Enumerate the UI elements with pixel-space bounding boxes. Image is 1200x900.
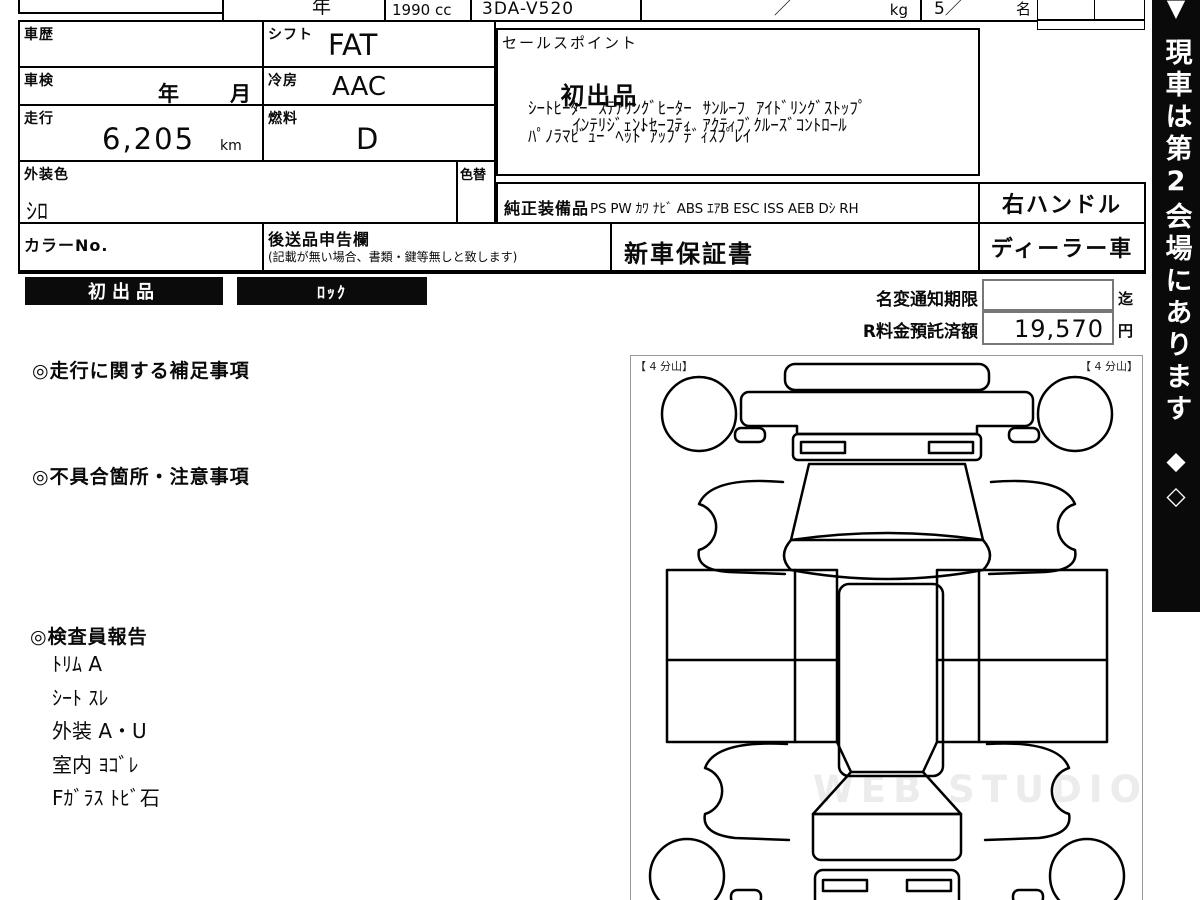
ac-label: 冷房 bbox=[268, 70, 298, 90]
front-grille-bar bbox=[741, 392, 1033, 434]
fender-front-left bbox=[699, 481, 785, 574]
lock-badge-label: ﾛｯｸ bbox=[317, 279, 347, 303]
dealer-value: ディーラー車 bbox=[991, 231, 1133, 263]
wheel-front-right bbox=[1038, 377, 1112, 451]
fender-front-right bbox=[989, 481, 1075, 574]
year-label: 年 bbox=[312, 0, 331, 19]
taillight-left bbox=[823, 880, 867, 891]
inspector-report-list: ﾄﾘﾑ A ｼｰﾄ ｽﾚ 外装 A・U 室内 ﾖｺﾞﾚ Fｶﾞﾗｽ ﾄﾋﾞ石 bbox=[52, 648, 160, 816]
top-cell-box-lower bbox=[1037, 20, 1145, 30]
top-cell-displacement: 1990 cc bbox=[384, 0, 472, 22]
table-bottom-rule bbox=[18, 270, 1146, 274]
wheel-rear-right bbox=[1050, 839, 1124, 900]
top-cell-empty bbox=[18, 0, 224, 14]
shift-cell: シフト FAT bbox=[262, 20, 496, 68]
mirror-left bbox=[735, 428, 765, 442]
venue-banner: ▼ 現車は第2会場にあります ◆◇ bbox=[1152, 0, 1200, 612]
lock-badge: ﾛｯｸ bbox=[237, 277, 427, 305]
doors-left bbox=[667, 570, 837, 742]
quarter-rear-left bbox=[705, 744, 789, 841]
car-diagram-panel: 【 4 分山】 【 4 分山】 WEB STUDIO PRO bbox=[630, 355, 1143, 900]
sales-point-line2: ｼｰﾄﾋｰﾀｰ ｽﾃｱﾘﾝｸﾞﾋｰﾀｰ ｻﾝﾙｰﾌ ｱｲﾄﾞﾘﾝｸﾞｽﾄｯﾌﾟ bbox=[528, 94, 866, 119]
venue-banner-text: 現車は第2会場にあります bbox=[1157, 38, 1196, 426]
car-top-view-diagram bbox=[631, 356, 1143, 900]
hood-front bbox=[793, 434, 981, 460]
model-code-value: 3DA-V520 bbox=[482, 0, 574, 19]
first-listing-badge-label: 初出品 bbox=[88, 278, 160, 304]
name-change-field bbox=[982, 279, 1114, 311]
deposit-label: R料金預託済額 bbox=[820, 317, 978, 342]
rear-tab-right bbox=[1013, 890, 1043, 900]
top-cell-year: 年 bbox=[222, 0, 386, 22]
section-inspector-report: ◎検査員報告 bbox=[30, 622, 148, 649]
mirror-right bbox=[1009, 428, 1039, 442]
report-item-exterior: 外装 A・U bbox=[52, 715, 160, 749]
fuel-value: D bbox=[356, 122, 378, 156]
top-cell-box-divider bbox=[1094, 0, 1095, 19]
mileage-label: 走行 bbox=[24, 108, 54, 128]
headlight-right bbox=[929, 442, 973, 453]
report-item-trim: ﾄﾘﾑ A bbox=[52, 648, 160, 682]
shift-label: シフト bbox=[268, 24, 313, 44]
name-change-label: 名変通知期限 bbox=[820, 285, 978, 310]
headlight-left bbox=[801, 442, 845, 453]
mileage-cell: 走行 6,205 km bbox=[18, 104, 264, 162]
report-item-interior: 室内 ﾖｺﾞﾚ bbox=[52, 749, 160, 783]
warranty-cell: 新車保証書 bbox=[610, 222, 980, 272]
weight-slash: ／ bbox=[774, 0, 791, 19]
taillight-right bbox=[907, 880, 951, 891]
auction-sheet: 年 1990 cc 3DA-V520 ／ kg 5／ 名 車歴 シフト FAT … bbox=[0, 0, 1200, 900]
wheel-front-left bbox=[662, 377, 736, 451]
top-cell-capacity: 5／ 名 bbox=[920, 0, 1039, 22]
equipment-value: PS PW ｶﾜ ﾅﾋﾞ ABS ｴｱB ESC ISS AEB Dｼ RH bbox=[590, 197, 858, 217]
report-item-glass: Fｶﾞﾗｽ ﾄﾋﾞ石 bbox=[52, 782, 160, 816]
section-defect-notes: ◎不具合箇所・注意事項 bbox=[32, 462, 250, 489]
exterior-color-cell: 外装色 ｼﾛ bbox=[18, 160, 458, 224]
section-mileage-notes: ◎走行に関する補足事項 bbox=[32, 356, 250, 383]
mileage-unit: km bbox=[220, 138, 242, 154]
handle-value: 右ハンドル bbox=[1002, 187, 1122, 219]
rear-bumper bbox=[815, 870, 959, 900]
deposit-field: 19,570 bbox=[982, 311, 1114, 345]
trunk bbox=[813, 814, 961, 860]
color-no-cell: カラーNo. bbox=[18, 222, 264, 272]
report-item-seat: ｼｰﾄ ｽﾚ bbox=[52, 682, 160, 716]
dealer-cell: ディーラー車 bbox=[978, 222, 1146, 272]
ac-value: AAC bbox=[332, 72, 386, 102]
quarter-rear-right bbox=[985, 744, 1069, 841]
sales-point-line3: ﾊﾟﾉﾗﾏﾋﾞｭｰ ﾍｯﾄﾞｱｯﾌﾟﾃﾞｨｽﾌﾟﾚｲ bbox=[528, 122, 751, 147]
top-cell-box bbox=[1037, 0, 1145, 20]
top-cell-model-code: 3DA-V520 bbox=[470, 0, 642, 22]
rear-tab-left bbox=[731, 890, 761, 900]
exterior-color-label: 外装色 bbox=[24, 164, 69, 184]
wheel-rear-left bbox=[650, 839, 724, 900]
deposit-unit: 円 bbox=[1118, 320, 1133, 341]
doors-right bbox=[937, 570, 1107, 742]
windshield bbox=[791, 464, 983, 540]
sales-point-box: セールスポイント 初出品 ｲﾝﾃﾘｼﾞｪﾝﾄｾｰﾌﾃｨ ｱｸﾃｨﾌﾞｸﾙｰｽﾞｺ… bbox=[496, 28, 980, 176]
weight-unit: kg bbox=[890, 1, 908, 19]
front-bumper bbox=[785, 364, 989, 390]
shift-value: FAT bbox=[328, 28, 377, 62]
first-listing-badge: 初出品 bbox=[25, 277, 223, 305]
ac-cell: 冷房 AAC bbox=[262, 66, 496, 106]
equipment-label: 純正装備品 bbox=[504, 195, 589, 219]
later-items-label: 後送品申告欄 bbox=[268, 226, 370, 250]
color-no-label: カラーNo. bbox=[24, 232, 108, 256]
equipment-cell: 純正装備品 PS PW ｶﾜ ﾅﾋﾞ ABS ｴｱB ESC ISS AEB D… bbox=[496, 182, 980, 224]
later-items-cell: 後送品申告欄 (記載が無い場合、書類・鍵等無しと致します) bbox=[262, 222, 612, 272]
sales-point-label: セールスポイント bbox=[502, 32, 638, 53]
color-change-cell: 色替 bbox=[456, 160, 496, 224]
capacity-value: 5／ bbox=[934, 0, 962, 19]
color-change-label: 色替 bbox=[460, 164, 486, 183]
deposit-value: 19,570 bbox=[1014, 315, 1104, 343]
history-label: 車歴 bbox=[24, 24, 54, 44]
down-triangle-icon: ▼ bbox=[1167, 0, 1185, 22]
history-cell: 車歴 bbox=[18, 20, 264, 68]
name-change-suffix: 迄 bbox=[1118, 288, 1133, 309]
inspection-cell: 車検 年 月 bbox=[18, 66, 264, 106]
sunroof bbox=[839, 584, 943, 776]
handle-cell: 右ハンドル bbox=[978, 182, 1146, 224]
fuel-label: 燃料 bbox=[268, 108, 298, 128]
warranty-value: 新車保証書 bbox=[624, 234, 754, 269]
rear-window bbox=[813, 772, 961, 814]
fuel-cell: 燃料 D bbox=[262, 104, 496, 162]
inspection-label: 車検 bbox=[24, 70, 54, 90]
diamond-icons: ◆◇ bbox=[1162, 446, 1191, 516]
mileage-value: 6,205 bbox=[102, 122, 195, 156]
displacement-value: 1990 cc bbox=[392, 1, 451, 19]
later-items-note: (記載が無い場合、書類・鍵等無しと致します) bbox=[268, 248, 517, 265]
capacity-unit: 名 bbox=[1016, 0, 1031, 19]
top-cell-weight: ／ kg bbox=[640, 0, 922, 22]
roof-rear-right-edge bbox=[923, 742, 937, 772]
